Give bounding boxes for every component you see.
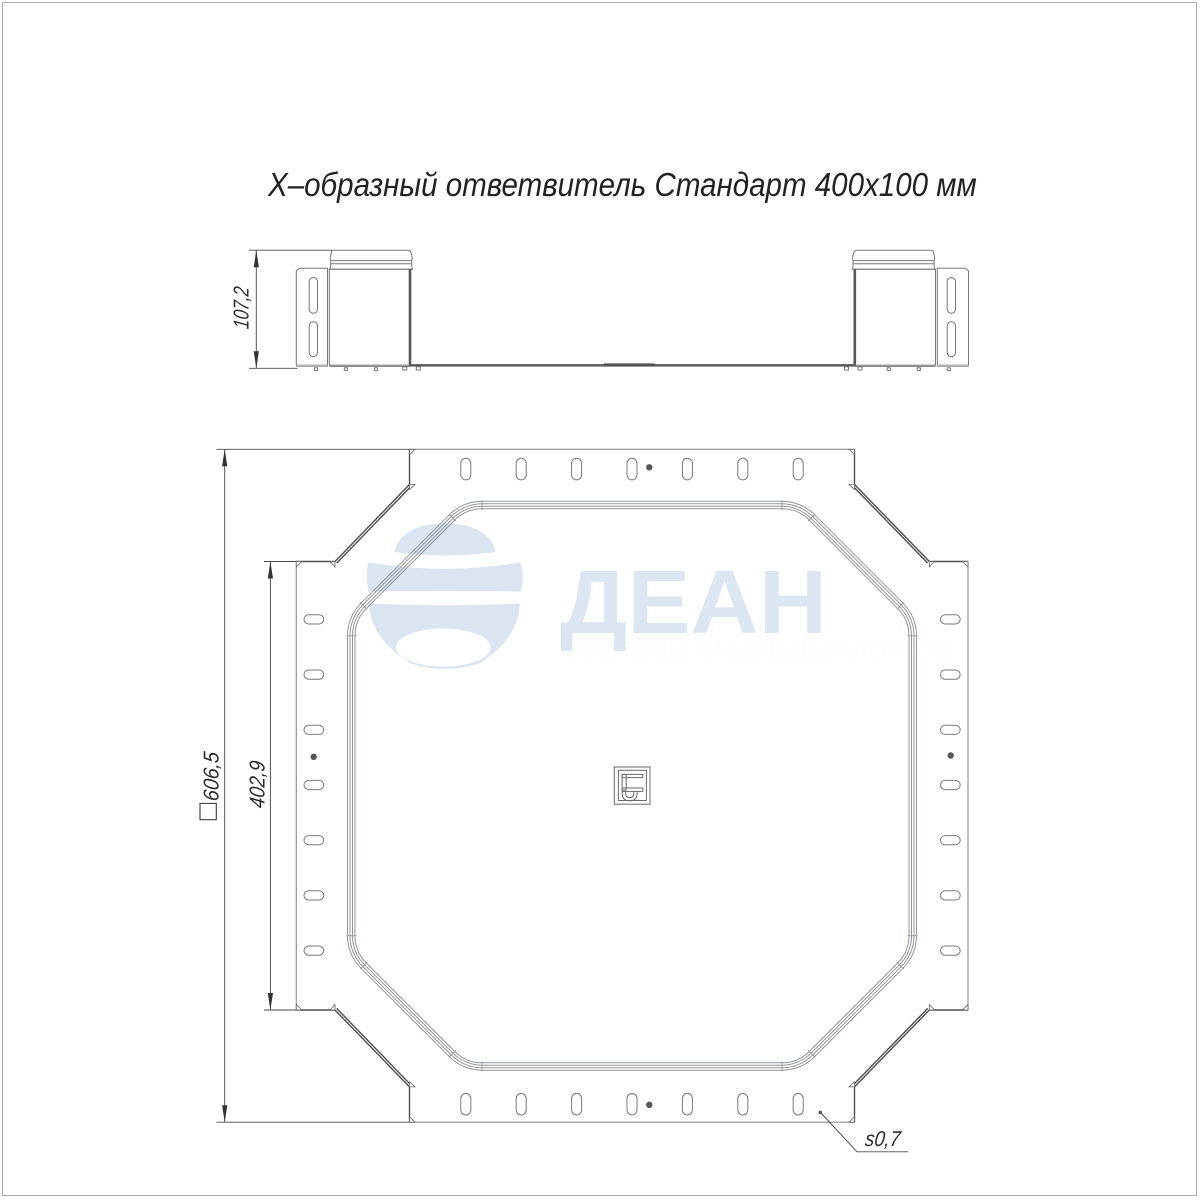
svg-text:402,9: 402,9 [245,759,270,809]
svg-text:107,2: 107,2 [229,285,254,330]
svg-text:СИСТЕМЫ КАБЕЛЬНЫХ ЛОТКОВ: СИСТЕМЫ КАБЕЛЬНЫХ ЛОТКОВ [565,637,950,663]
svg-text:606,5: 606,5 [199,749,224,802]
svg-text:s0,7: s0,7 [864,1126,903,1151]
